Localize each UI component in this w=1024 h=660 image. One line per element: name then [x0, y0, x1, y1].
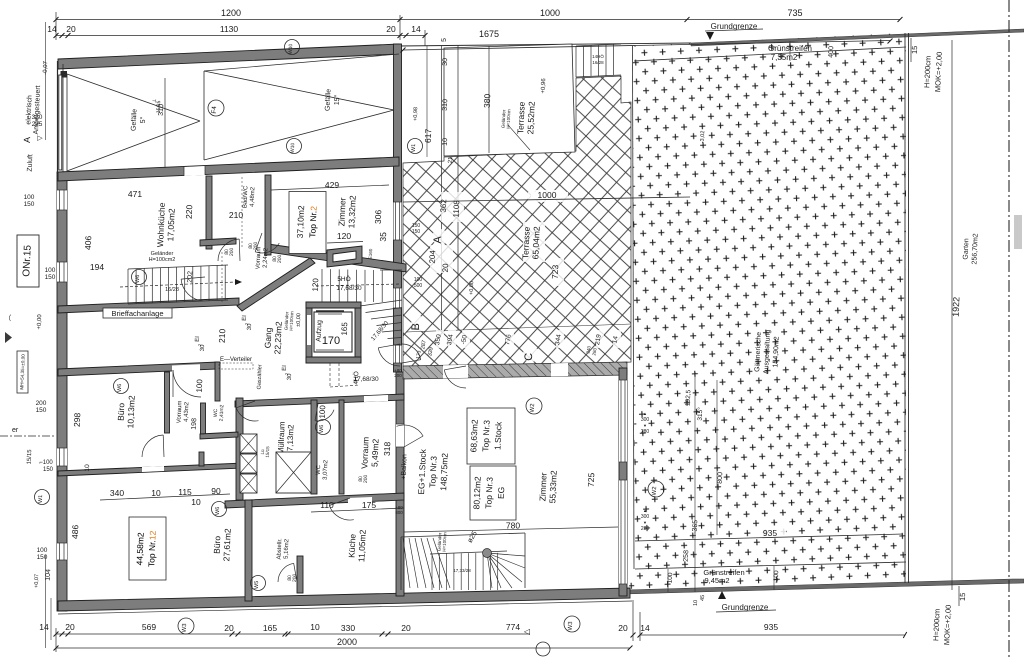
- svg-text:Top Nr.3: Top Nr.3: [427, 456, 438, 488]
- svg-text:17,05m2: 17,05m2: [165, 208, 176, 242]
- svg-text:150: 150: [45, 274, 56, 281]
- svg-text:192,5: 192,5: [685, 389, 693, 406]
- svg-text:170: 170: [322, 335, 340, 347]
- svg-text:204: 204: [428, 249, 438, 263]
- svg-text:◁: ◁: [524, 627, 531, 636]
- svg-text:120: 120: [311, 277, 321, 291]
- svg-text:150: 150: [24, 201, 35, 208]
- svg-text:▲: ▲: [643, 508, 647, 513]
- svg-text:W2: W2: [530, 403, 536, 413]
- svg-text:1130: 1130: [220, 24, 239, 34]
- svg-text:617: 617: [423, 128, 434, 143]
- svg-text:W5: W5: [254, 581, 260, 590]
- svg-text:1108: 1108: [452, 200, 462, 218]
- svg-text:165: 165: [263, 623, 277, 633]
- svg-text:258: 258: [683, 550, 691, 562]
- svg-text:27,61m2: 27,61m2: [221, 528, 232, 562]
- svg-text:800: 800: [717, 472, 725, 484]
- svg-text:429: 429: [325, 180, 339, 190]
- svg-text:A: A: [432, 235, 444, 244]
- svg-text:W3: W3: [568, 621, 574, 631]
- svg-text:Gefälle: Gefälle: [131, 109, 139, 132]
- svg-text:11,05m2: 11,05m2: [356, 529, 367, 562]
- svg-text:Vorraum: Vorraum: [177, 400, 184, 423]
- svg-text:MOK=+2,00: MOK=+2,00: [942, 604, 953, 645]
- svg-text:725: 725: [586, 472, 597, 487]
- svg-text:100: 100: [318, 404, 328, 418]
- svg-text:5,16m2: 5,16m2: [284, 538, 291, 559]
- svg-text:Top Nr.2: Top Nr.2: [307, 206, 318, 238]
- svg-text:4,43m2: 4,43m2: [184, 401, 191, 422]
- svg-text:H=100cm: H=100cm: [442, 532, 448, 552]
- svg-text:H=100cm2: H=100cm2: [149, 257, 176, 263]
- svg-text:⊥: ⊥: [152, 99, 158, 104]
- svg-text:100: 100: [45, 267, 56, 274]
- svg-text:200: 200: [277, 254, 283, 263]
- svg-text:10: 10: [693, 600, 699, 606]
- svg-text:200: 200: [363, 474, 369, 483]
- svg-text:315°: 315°: [696, 407, 705, 421]
- svg-text:14: 14: [411, 24, 421, 34]
- svg-text:935: 935: [763, 528, 777, 538]
- svg-text:68,63m2: 68,63m2: [468, 419, 479, 453]
- svg-text:800: 800: [395, 510, 403, 515]
- svg-text:W6: W6: [215, 507, 221, 516]
- svg-text:202: 202: [187, 271, 195, 283]
- svg-text:MOK=+2,00: MOK=+2,00: [933, 51, 944, 92]
- svg-text:1000: 1000: [540, 8, 560, 18]
- svg-text:er: er: [12, 427, 19, 434]
- svg-text:14: 14: [39, 622, 49, 632]
- svg-text:37,10m2: 37,10m2: [295, 205, 306, 239]
- svg-text:25,52m2: 25,52m2: [525, 101, 536, 135]
- svg-text:22,23m2: 22,23m2: [272, 321, 283, 355]
- svg-text:225: 225: [32, 121, 43, 128]
- svg-text:175: 175: [362, 500, 376, 510]
- svg-text:Zuluft: Zuluft: [27, 154, 35, 172]
- svg-text:500: 500: [414, 283, 423, 289]
- svg-text:5HÖ: 5HÖ: [337, 275, 350, 283]
- svg-text:150: 150: [43, 467, 54, 473]
- svg-text:17,33/28: 17,33/28: [453, 568, 471, 573]
- svg-text:400: 400: [828, 46, 836, 58]
- svg-text:+Balkon: +Balkon: [400, 454, 408, 480]
- svg-text:W1: W1: [38, 495, 44, 504]
- svg-text:H=200cm: H=200cm: [931, 609, 941, 642]
- svg-text:318: 318: [382, 441, 393, 456]
- svg-text:5: 5: [441, 38, 448, 42]
- svg-text:35: 35: [378, 232, 388, 242]
- svg-text:Garten: Garten: [963, 238, 971, 260]
- svg-text:▷: ▷: [37, 135, 43, 142]
- svg-text:15/15: 15/15: [265, 446, 271, 458]
- svg-text:7,35m2: 7,35m2: [771, 53, 798, 62]
- svg-text:Abstellr.: Abstellr.: [277, 538, 284, 560]
- svg-text:20: 20: [618, 623, 628, 633]
- svg-text:Gaszähler: Gaszähler: [256, 364, 263, 389]
- svg-text:W6: W6: [319, 425, 325, 434]
- svg-text:Top Nr.12: Top Nr.12: [146, 530, 158, 567]
- svg-text:±0,00: ±0,00: [296, 313, 303, 327]
- svg-text:20: 20: [66, 24, 76, 34]
- svg-text:1000: 1000: [538, 190, 557, 200]
- svg-text:E160: E160: [368, 248, 373, 259]
- svg-text:EG: EG: [496, 487, 507, 500]
- svg-text:20: 20: [386, 24, 396, 34]
- svg-text:EI: EI: [195, 336, 201, 342]
- svg-text:W1: W1: [411, 144, 417, 153]
- svg-text:198: 198: [191, 418, 199, 430]
- svg-text:H=100cm: H=100cm: [289, 311, 295, 331]
- svg-text:65,04m2: 65,04m2: [530, 226, 541, 260]
- svg-text:EG+1.Stock: EG+1.Stock: [416, 448, 428, 495]
- svg-text:200: 200: [229, 247, 235, 256]
- svg-text:10: 10: [84, 464, 91, 472]
- svg-text:340: 340: [110, 488, 124, 498]
- svg-text:ONr.15: ONr.15: [21, 244, 33, 277]
- svg-text:17,68/30: 17,68/30: [353, 376, 379, 383]
- svg-text:194: 194: [90, 262, 104, 272]
- svg-text:110: 110: [320, 500, 334, 510]
- svg-text:44,58m2: 44,58m2: [134, 532, 145, 566]
- svg-text:14HÖ: 14HÖ: [592, 53, 604, 59]
- svg-text:Top Nr.3: Top Nr.3: [480, 420, 491, 452]
- svg-text:280: 280: [641, 526, 650, 532]
- svg-text:21: 21: [448, 156, 454, 164]
- svg-text:15°: 15°: [333, 94, 341, 105]
- svg-text:935: 935: [764, 622, 778, 632]
- svg-text:330: 330: [341, 623, 355, 633]
- svg-text:Top Nr.3: Top Nr.3: [483, 477, 494, 509]
- svg-text:16/28: 16/28: [592, 60, 604, 65]
- svg-text:A: A: [22, 137, 32, 143]
- svg-text:5°: 5°: [139, 116, 147, 123]
- svg-text:WC: WC: [316, 464, 322, 475]
- svg-text:E—Verteiler: E—Verteiler: [220, 357, 252, 363]
- svg-text:5,49m2: 5,49m2: [369, 438, 380, 467]
- svg-text:471: 471: [128, 189, 142, 199]
- svg-text:F4: F4: [211, 106, 218, 114]
- svg-text:148,75m2: 148,75m2: [438, 452, 450, 490]
- svg-text:10: 10: [151, 488, 161, 498]
- svg-text:200: 200: [292, 573, 298, 582]
- svg-text:298: 298: [72, 412, 83, 427]
- svg-text:306: 306: [373, 209, 384, 224]
- svg-text:150: 150: [36, 407, 47, 414]
- svg-text:154,90m2: 154,90m2: [772, 336, 780, 368]
- svg-text:⌒: ⌒: [9, 314, 17, 321]
- svg-text:80,12m2: 80,12m2: [471, 476, 482, 510]
- svg-text:20: 20: [401, 623, 411, 633]
- svg-text:10: 10: [442, 138, 449, 146]
- svg-text:3,07m2: 3,07m2: [323, 459, 330, 480]
- svg-text:165: 165: [340, 321, 350, 335]
- svg-text:10: 10: [191, 497, 201, 507]
- svg-text:210: 210: [217, 328, 228, 343]
- svg-text:14: 14: [47, 24, 57, 34]
- svg-text:15/15: 15/15: [27, 449, 34, 465]
- svg-text:256,70m2: 256,70m2: [971, 233, 979, 265]
- svg-text:+0,98: +0,98: [413, 107, 420, 121]
- svg-text:380: 380: [482, 93, 493, 108]
- svg-text:735: 735: [787, 8, 802, 18]
- svg-text:+0,00: +0,00: [37, 314, 44, 330]
- svg-text:17,68/30: 17,68/30: [336, 285, 362, 292]
- svg-text:9,45m2: 9,45m2: [704, 576, 729, 585]
- svg-text:100: 100: [195, 378, 205, 392]
- svg-text:120: 120: [337, 231, 351, 241]
- svg-text:330: 330: [32, 114, 43, 121]
- svg-text:W6: W6: [117, 384, 123, 393]
- svg-text:7,13m2: 7,13m2: [285, 424, 295, 452]
- svg-text:H=200cm: H=200cm: [922, 56, 932, 89]
- svg-text:100: 100: [37, 547, 48, 554]
- svg-text:220: 220: [184, 204, 195, 219]
- svg-text:2,24m2: 2,24m2: [263, 247, 270, 268]
- svg-text:+0,96: +0,96: [541, 78, 548, 94]
- svg-text:723: 723: [550, 264, 561, 279]
- svg-text:210: 210: [229, 210, 243, 220]
- svg-text:45: 45: [700, 595, 706, 601]
- svg-text:C: C: [523, 353, 535, 362]
- svg-text:20: 20: [65, 622, 75, 632]
- svg-text:+0,07: +0,07: [34, 574, 41, 588]
- svg-text:20: 20: [224, 623, 234, 633]
- svg-text:▼: ▼: [643, 423, 647, 428]
- svg-text:EI: EI: [282, 365, 288, 371]
- svg-text:W3: W3: [182, 623, 188, 633]
- svg-text:▲: ▲: [643, 411, 647, 416]
- svg-text:486: 486: [70, 524, 81, 539]
- svg-text:1.Stock: 1.Stock: [492, 421, 503, 451]
- svg-text:4,48m2: 4,48m2: [250, 186, 257, 207]
- svg-text:10: 10: [310, 622, 320, 632]
- svg-text:55,33m2: 55,33m2: [547, 470, 558, 504]
- svg-text:406: 406: [83, 235, 94, 250]
- svg-text:30: 30: [442, 58, 449, 66]
- svg-text:200: 200: [394, 373, 402, 378]
- svg-text:EI: EI: [242, 315, 248, 321]
- svg-text:⌐100: ⌐100: [39, 460, 53, 466]
- svg-text:150: 150: [412, 229, 421, 235]
- svg-text:Gefälle: Gefälle: [325, 89, 333, 112]
- svg-text:1200: 1200: [221, 8, 241, 18]
- svg-text:+0,00: +0,00: [469, 281, 476, 295]
- svg-text:13,32m2: 13,32m2: [346, 195, 357, 229]
- svg-text:30: 30: [200, 344, 206, 352]
- svg-text:20: 20: [441, 263, 450, 273]
- svg-text:10,13m2: 10,13m2: [125, 395, 136, 429]
- svg-text:W10: W10: [288, 43, 294, 54]
- svg-text:-3,02: -3,02: [700, 131, 707, 144]
- svg-text:B: B: [410, 323, 422, 331]
- svg-text:Brieffachanlage: Brieffachanlage: [112, 309, 164, 318]
- svg-text:14: 14: [640, 623, 650, 633]
- svg-text:774: 774: [506, 622, 520, 632]
- svg-text:2000: 2000: [337, 637, 357, 647]
- svg-text:▼: ▼: [643, 520, 647, 525]
- svg-text:569: 569: [142, 622, 156, 632]
- svg-text:362: 362: [439, 198, 449, 212]
- svg-text:2,41m2: 2,41m2: [219, 404, 226, 421]
- svg-text:30: 30: [247, 323, 253, 331]
- svg-text:200: 200: [36, 400, 47, 407]
- svg-text:-365: -365: [692, 520, 700, 534]
- svg-text:16/28: 16/28: [165, 287, 179, 293]
- svg-text:310: 310: [442, 99, 450, 111]
- svg-text:30: 30: [287, 373, 293, 381]
- svg-text:Bad/WC: Bad/WC: [243, 185, 250, 208]
- svg-text:W10: W10: [290, 142, 296, 153]
- svg-text:1675: 1675: [479, 29, 499, 39]
- svg-text:100: 100: [24, 194, 35, 201]
- svg-text:-0,07: -0,07: [43, 60, 50, 75]
- svg-text:104: 104: [45, 569, 53, 581]
- svg-text:150: 150: [37, 554, 48, 561]
- svg-text:W6: W6: [135, 275, 141, 284]
- svg-text:280: 280: [641, 429, 650, 435]
- svg-text:W2: W2: [652, 486, 658, 496]
